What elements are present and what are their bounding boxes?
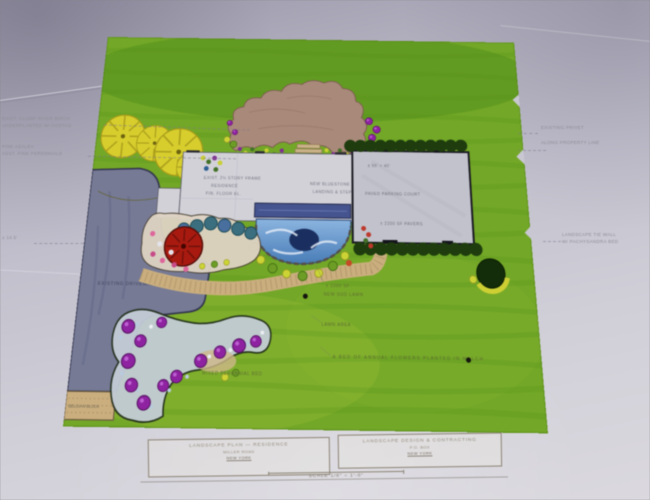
svg-text:± 55' × 40': ± 55' × 40' <box>368 163 391 168</box>
svg-text:FIN. FLOOR EL.: FIN. FLOOR EL. <box>206 191 242 196</box>
house: EXIST. 2½ STORY FRAME RESIDENCE FIN. FLO… <box>156 150 355 223</box>
designer-address-2: NEW YORK <box>355 451 485 458</box>
leader-line <box>543 241 561 242</box>
parking-court: ± 55' × 40' PAVED PARKING COURT ± 2200 S… <box>352 149 474 244</box>
margin-note-left-2: PINK AZALEA ASST. PINK PERENNIALS <box>2 145 82 159</box>
photo-of-landscape-plan: EXISTING DRIVEWAY BELGIAN BLOCK <box>0 0 650 500</box>
paper-crease <box>500 25 650 44</box>
svg-text:± 1200 SF: ± 1200 SF <box>326 283 350 289</box>
designer-box: LANDSCAPE DESIGN & CONTRACTING P.O. BOX … <box>338 433 502 469</box>
svg-text:± 2200 SF PAVERS: ± 2200 SF PAVERS <box>380 221 423 226</box>
leader-line <box>518 150 546 151</box>
margin-note-right-2: LANDSCAPE TIE WALL W/ PACHYSANDRA BED <box>562 233 637 247</box>
margin-note-left-1: EXIST. CLUMP RIVER BIRCH UNDERPLANTED W/… <box>2 117 95 131</box>
designer-name: LANDSCAPE DESIGN & CONTRACTING <box>355 437 485 445</box>
site-plan-svg: EXISTING DRIVEWAY BELGIAN BLOCK <box>63 37 548 433</box>
svg-text:MIXED PERENNIAL BED: MIXED PERENNIAL BED <box>202 370 263 376</box>
project-title: LANDSCAPE PLAN — RESIDENCE <box>167 441 311 449</box>
svg-text:EXIST. 2½ STORY FRAME: EXIST. 2½ STORY FRAME <box>204 175 262 180</box>
plan-drawing: EXISTING DRIVEWAY BELGIAN BLOCK <box>63 37 548 433</box>
svg-text:NEW SOD LAWN: NEW SOD LAWN <box>324 291 364 297</box>
svg-text:LAWN AREA: LAWN AREA <box>321 321 351 327</box>
svg-text:RESIDENCE: RESIDENCE <box>211 183 238 188</box>
title-block: LANDSCAPE PLAN — RESIDENCE MILLER ROAD N… <box>140 429 509 490</box>
leader-line <box>518 133 538 134</box>
svg-text:NEW BLUESTONE: NEW BLUESTONE <box>310 181 350 186</box>
apron-label: BELGIAN BLOCK <box>68 404 100 409</box>
margin-note-left-3: ± 14.5' <box>2 236 23 243</box>
leader-line <box>34 243 94 244</box>
margin-note-right-1: EXISTING PRIVET ALONG PROPERTY LINE <box>541 126 619 148</box>
project-address-2: NEW YORK <box>167 455 311 462</box>
svg-text:PAVED PARKING COURT: PAVED PARKING COURT <box>365 191 420 197</box>
svg-text:LANDING & STEPS: LANDING & STEPS <box>313 189 355 194</box>
